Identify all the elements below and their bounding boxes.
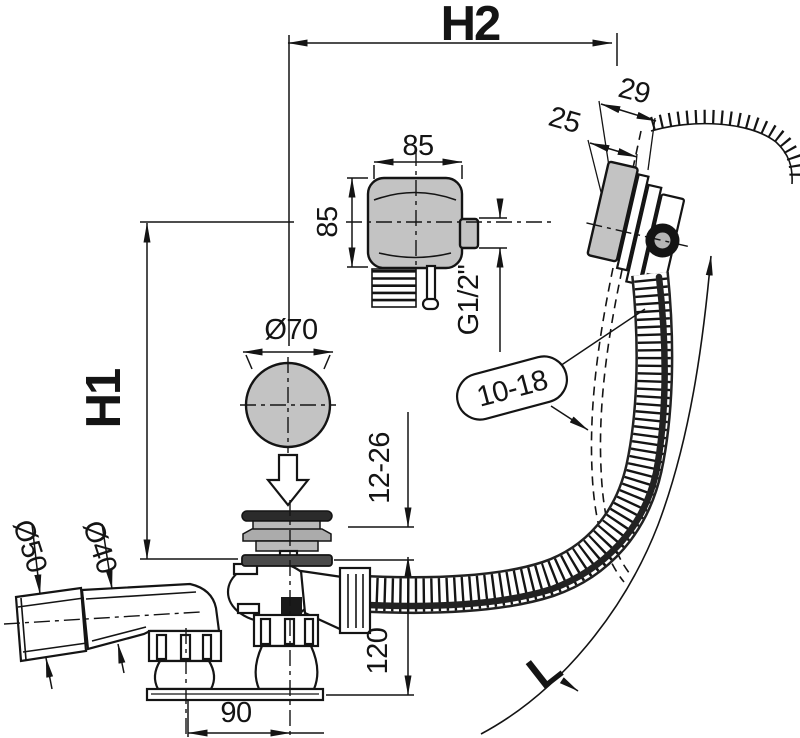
plug-cap-side-view [242, 511, 332, 557]
hose-union-nut [340, 568, 370, 633]
dim-hose-length-label: L [517, 641, 570, 699]
dim-sleeve-diameter-label: Ø50 [6, 516, 53, 577]
dim-body-height-label: 120 [362, 628, 394, 675]
assembly-direction-arrow [268, 455, 308, 505]
wall-thickness-callout: 10-18 [452, 351, 572, 424]
dim-thread-label: G1/2" [453, 264, 485, 335]
dim-h2-label: H2 [441, 0, 500, 51]
dim-box-width-label: 85 [402, 130, 433, 162]
dim-outlet-offset-label: 90 [220, 697, 251, 729]
waste-drain-body [228, 555, 370, 689]
dim-h1-label: H1 [77, 369, 131, 428]
plug-cap-top-view [246, 363, 330, 447]
dim-plug-diameter-label: Ø70 [264, 314, 317, 346]
bath-drain-installation-diagram: 10-18 H2 H1 85 85 G1/2" Ø70 12-26 120 Ø5… [0, 0, 800, 738]
dim-pipe-diameter-label: Ø40 [76, 517, 123, 578]
technical-drawing-page: 10-18 H2 H1 85 85 G1/2" Ø70 12-26 120 Ø5… [0, 0, 800, 738]
bath-rim [633, 117, 796, 184]
dim-box-height-label: 85 [312, 206, 344, 237]
probe-pin [427, 266, 435, 302]
water-inlet-tab [460, 219, 478, 248]
hose-length-curve [481, 256, 711, 734]
dim-rim-offset-outer-label: 29 [615, 72, 653, 111]
dim-rim-offset-inner-label: 25 [545, 101, 584, 140]
dim-floor-range-label: 12-26 [364, 432, 396, 504]
drain-flange [242, 555, 332, 566]
